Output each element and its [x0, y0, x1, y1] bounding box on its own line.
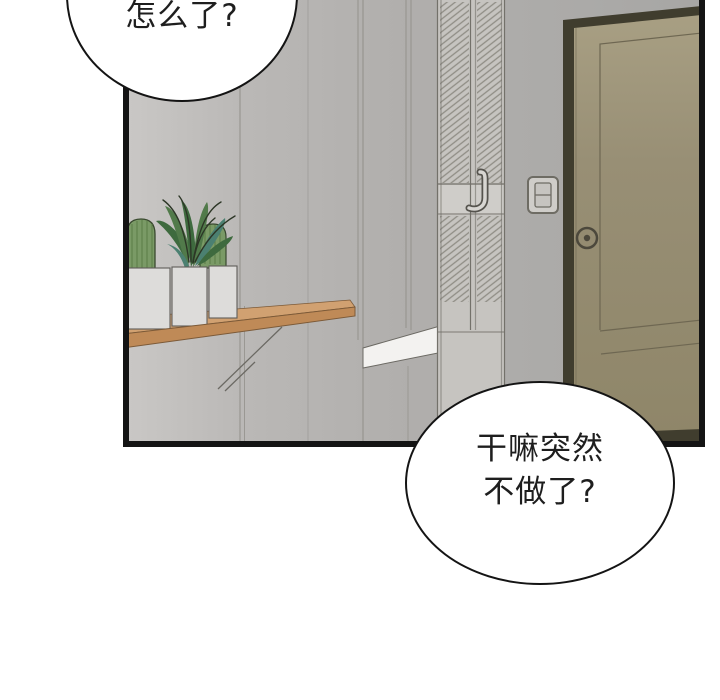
light-switch	[528, 177, 558, 213]
comic-page: 怎么了? 干嘛突然 不做了?	[0, 0, 720, 700]
pot-middle	[172, 267, 207, 326]
door-leaf	[574, 15, 699, 434]
entry-door	[563, 6, 699, 441]
speech-bubble-bottom-right: 干嘛突然 不做了?	[405, 381, 675, 585]
speech-text-bottom-right: 干嘛突然 不做了?	[476, 428, 604, 514]
closet-louver-door	[437, 0, 505, 441]
pot-right	[209, 266, 237, 318]
deadbolt	[577, 228, 597, 248]
speech-line-1: 干嘛突然	[476, 428, 604, 471]
speech-text-top-left: 怎么了?	[125, 0, 238, 38]
pot-left	[129, 268, 170, 329]
speech-line-2: 不做了?	[476, 471, 604, 514]
cactus-left	[129, 219, 155, 270]
